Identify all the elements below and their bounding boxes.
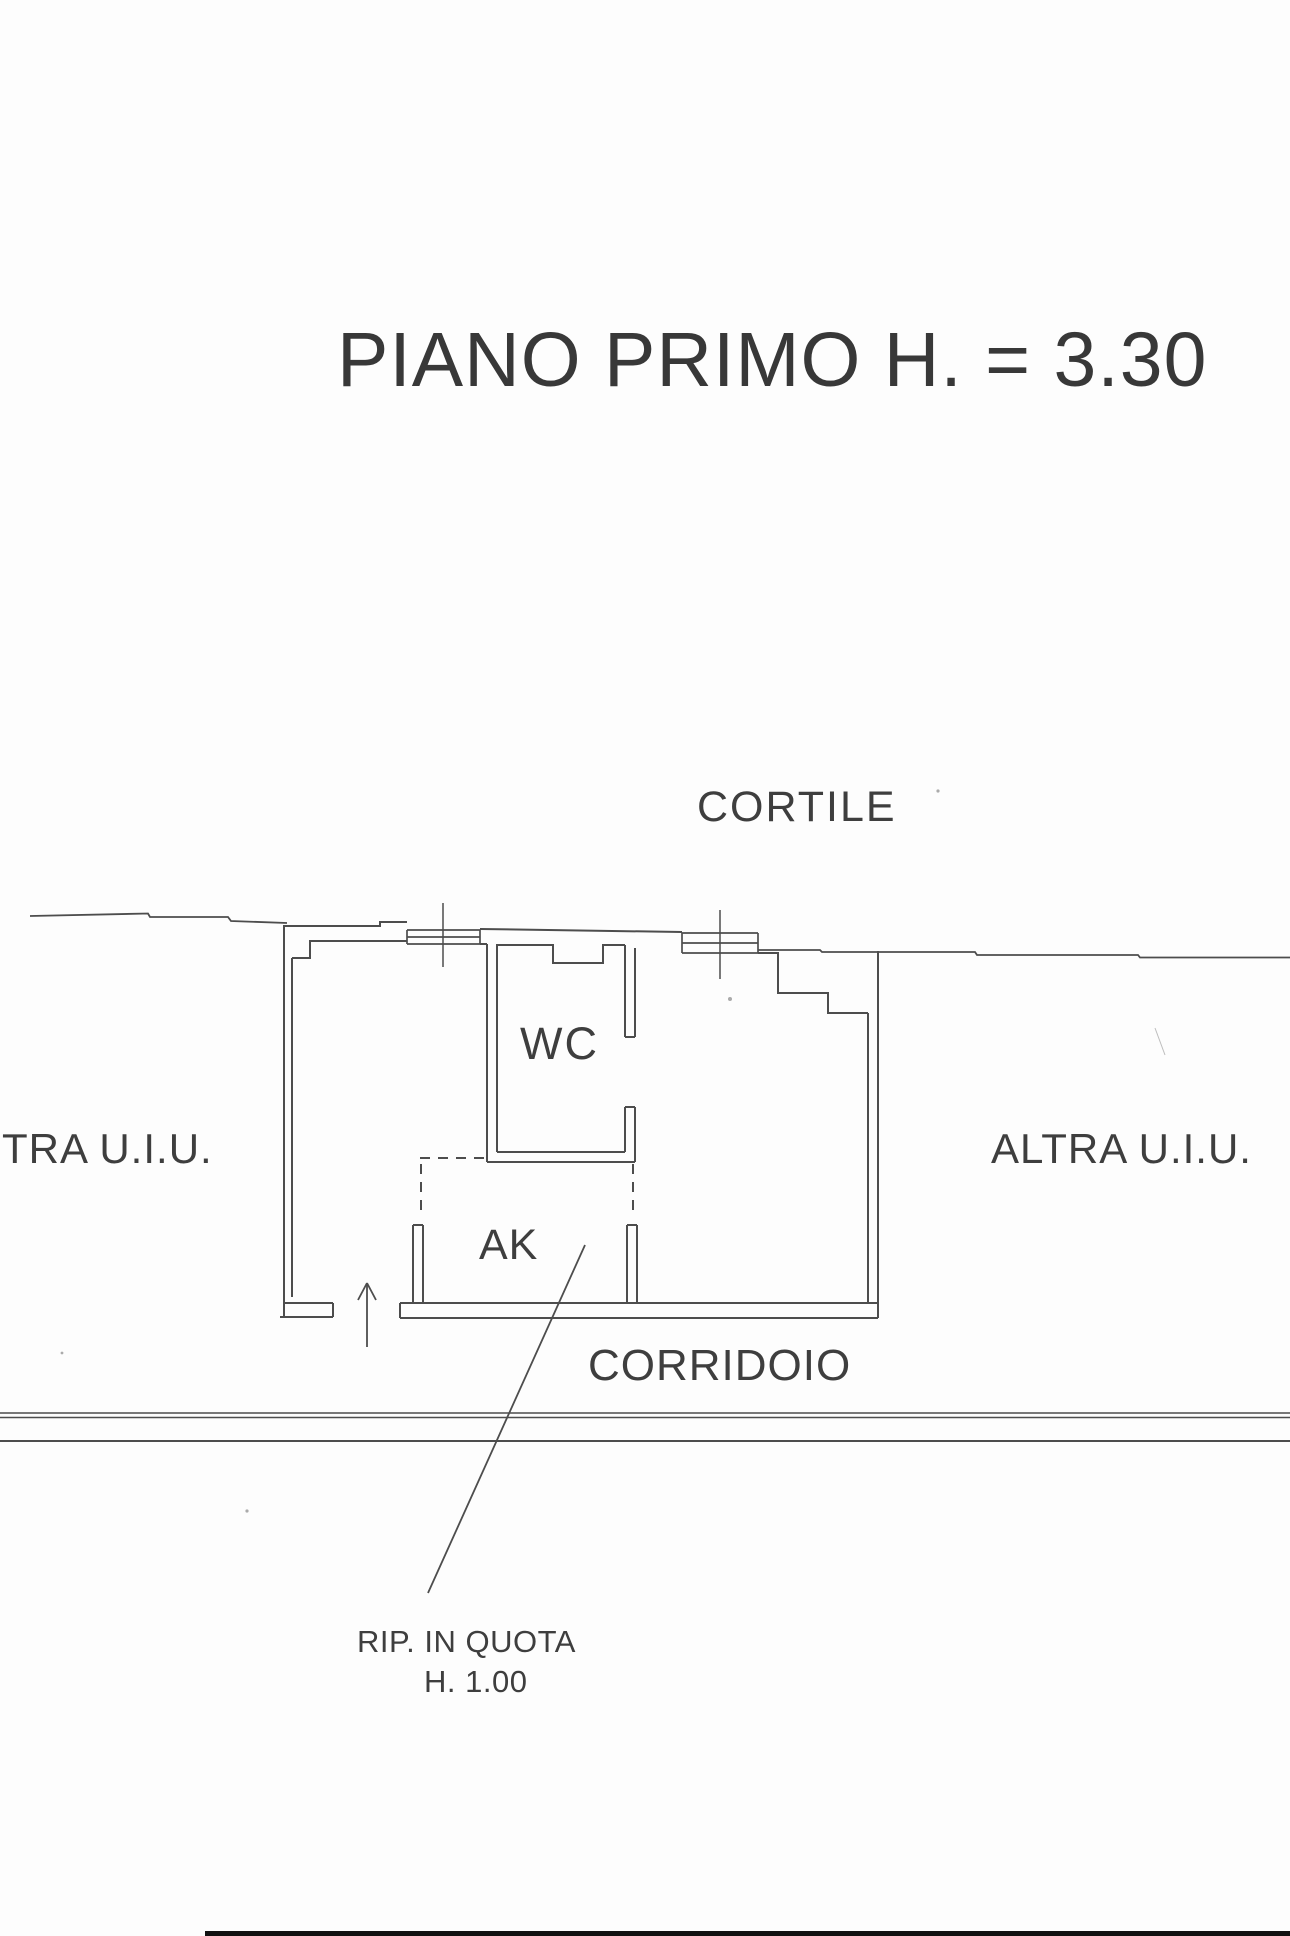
boundary-line-left bbox=[30, 914, 287, 924]
floor-plan-drawing bbox=[0, 0, 1290, 1936]
unit-right-wall bbox=[758, 951, 878, 1318]
annotation-height: H. 1.00 bbox=[424, 1666, 527, 1697]
label-cortile: CORTILE bbox=[697, 786, 897, 829]
label-wc-room: WC bbox=[520, 1021, 599, 1066]
label-corridoio: CORRIDOIO bbox=[588, 1344, 851, 1388]
window-symbol-2 bbox=[682, 910, 758, 979]
scanned-floor-plan-page: PIANO PRIMO H. = 3.30 CORTILE TRA U.I.U.… bbox=[0, 0, 1290, 1936]
plan-title: PIANO PRIMO H. = 3.30 bbox=[337, 322, 1207, 399]
scan-scratch bbox=[1155, 1028, 1165, 1055]
label-other-unit-left: TRA U.I.U. bbox=[2, 1128, 213, 1170]
annotation-rip-in-quota: RIP. IN QUOTA bbox=[357, 1626, 576, 1657]
corridor-lines bbox=[0, 1413, 1290, 1441]
boundary-line-right bbox=[758, 950, 1290, 958]
label-ak-room: AK bbox=[479, 1224, 538, 1267]
annotation-leader-line bbox=[428, 1245, 585, 1593]
unit-left-wall bbox=[284, 925, 407, 1317]
unit-top-wall bbox=[284, 922, 682, 932]
storage-dashed-outline bbox=[420, 1158, 633, 1216]
label-other-unit-right: ALTRA U.I.U. bbox=[991, 1128, 1252, 1170]
entrance-arrow-icon bbox=[358, 1283, 376, 1347]
window-symbol-1 bbox=[407, 903, 480, 967]
unit-bottom-wall bbox=[280, 1303, 878, 1318]
scanner-edge-artifact bbox=[205, 1931, 1290, 1936]
